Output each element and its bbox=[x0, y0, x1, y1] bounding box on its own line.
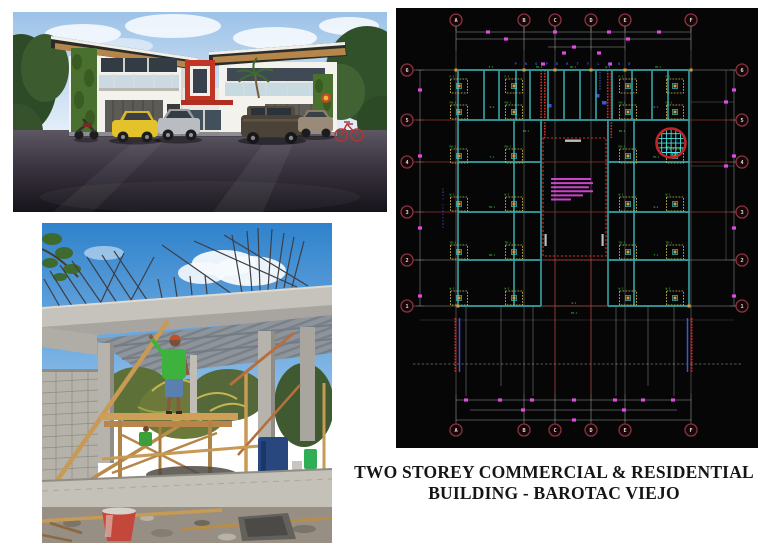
svg-text:PW-1: PW-1 bbox=[619, 145, 626, 149]
svg-text:4: 4 bbox=[740, 160, 743, 166]
svg-text:W-2: W-2 bbox=[490, 105, 495, 109]
upper-windows-left bbox=[101, 58, 177, 72]
svg-text:PW-1: PW-1 bbox=[489, 253, 496, 257]
mortar-pan bbox=[238, 513, 296, 541]
svg-text:D: D bbox=[589, 18, 592, 24]
svg-text:TB-1: TB-1 bbox=[619, 241, 626, 245]
construction-progress-photo bbox=[42, 223, 332, 543]
svg-text:1: 1 bbox=[740, 304, 743, 310]
svg-text:5: 5 bbox=[405, 118, 408, 124]
background-foliage bbox=[102, 363, 332, 447]
svg-text:TB-1: TB-1 bbox=[653, 155, 660, 159]
svg-text:F-1: F-1 bbox=[490, 155, 495, 159]
svg-text:W-1: W-1 bbox=[654, 105, 659, 109]
svg-text:W-1: W-1 bbox=[450, 193, 455, 197]
svg-text:2: 2 bbox=[740, 258, 743, 264]
svg-text:F-1: F-1 bbox=[505, 75, 510, 79]
svg-text:PW-1: PW-1 bbox=[619, 129, 626, 133]
svg-text:TB-1: TB-1 bbox=[666, 241, 673, 245]
svg-text:C: C bbox=[553, 18, 556, 24]
svg-text:W-2: W-2 bbox=[654, 205, 659, 209]
svg-text:W-1: W-1 bbox=[572, 301, 577, 305]
svg-text:3: 3 bbox=[740, 210, 743, 216]
svg-text:F-1: F-1 bbox=[619, 75, 624, 79]
svg-text:W-1: W-1 bbox=[619, 193, 624, 197]
svg-text:D: D bbox=[589, 428, 592, 434]
svg-text:F-1: F-1 bbox=[489, 65, 494, 69]
svg-text:TB-1: TB-1 bbox=[571, 311, 578, 315]
svg-text:FW-1: FW-1 bbox=[619, 101, 626, 105]
svg-text:4: 4 bbox=[405, 160, 408, 166]
svg-text:W-1: W-1 bbox=[666, 193, 671, 197]
svg-text:F-1: F-1 bbox=[450, 75, 455, 79]
svg-text:B: B bbox=[522, 18, 525, 24]
second-worker bbox=[139, 426, 152, 446]
svg-text:FW-1: FW-1 bbox=[505, 101, 512, 105]
svg-text:FW-1: FW-1 bbox=[666, 101, 673, 105]
project-title-line1: TWO STOREY COMMERCIAL & RESIDENTIAL bbox=[340, 462, 768, 483]
left-balcony bbox=[99, 73, 179, 91]
svg-text:W-2: W-2 bbox=[505, 287, 510, 291]
svg-text:TB-1: TB-1 bbox=[450, 241, 457, 245]
svg-text:C: C bbox=[553, 428, 556, 434]
svg-text:E: E bbox=[623, 18, 626, 24]
svg-text:W-2: W-2 bbox=[450, 287, 455, 291]
portfolio-collage: { "page": {"width": 768, "height": 550, … bbox=[0, 0, 768, 550]
svg-text:FW-1: FW-1 bbox=[450, 101, 457, 105]
project-title: TWO STOREY COMMERCIAL & RESIDENTIAL BUIL… bbox=[340, 462, 768, 504]
svg-text:W-1: W-1 bbox=[505, 193, 510, 197]
svg-text:W-2: W-2 bbox=[619, 287, 624, 291]
svg-text:F: F bbox=[689, 428, 692, 434]
svg-text:TB-1: TB-1 bbox=[505, 241, 512, 245]
svg-text:5: 5 bbox=[740, 118, 743, 124]
right-balcony-glass bbox=[225, 81, 327, 96]
svg-text:1: 1 bbox=[405, 304, 408, 310]
svg-text:FW-1: FW-1 bbox=[489, 205, 496, 209]
svg-text:F: F bbox=[689, 18, 692, 24]
exterior-render-photo bbox=[13, 12, 387, 212]
red-bucket bbox=[102, 508, 136, 542]
svg-text:3: 3 bbox=[405, 210, 408, 216]
svg-text:F-1: F-1 bbox=[654, 253, 659, 257]
svg-text:PW-1: PW-1 bbox=[450, 145, 457, 149]
svg-text:F-1: F-1 bbox=[666, 75, 671, 79]
svg-text:PW-1: PW-1 bbox=[505, 145, 512, 149]
svg-text:B: B bbox=[522, 428, 525, 434]
svg-text:6: 6 bbox=[405, 68, 408, 74]
svg-text:P R O P E R T Y L I N E: P R O P E R T Y L I N E bbox=[515, 62, 634, 66]
svg-text:PROPERTY LINE: PROPERTY LINE bbox=[441, 187, 445, 228]
svg-text:FW-1: FW-1 bbox=[523, 129, 530, 133]
floor-plan-drawing: F-1FW-1PW-1W-1TB-1W-2F-1FW-1PW-1W-1TB-1W… bbox=[396, 8, 758, 448]
svg-text:6: 6 bbox=[740, 68, 743, 74]
project-title-line2: BUILDING - BAROTAC VIEJO bbox=[340, 483, 768, 504]
svg-text:E: E bbox=[623, 428, 626, 434]
svg-text:W-2: W-2 bbox=[666, 287, 671, 291]
svg-text:TB-1: TB-1 bbox=[655, 65, 662, 69]
svg-text:2: 2 bbox=[405, 258, 408, 264]
